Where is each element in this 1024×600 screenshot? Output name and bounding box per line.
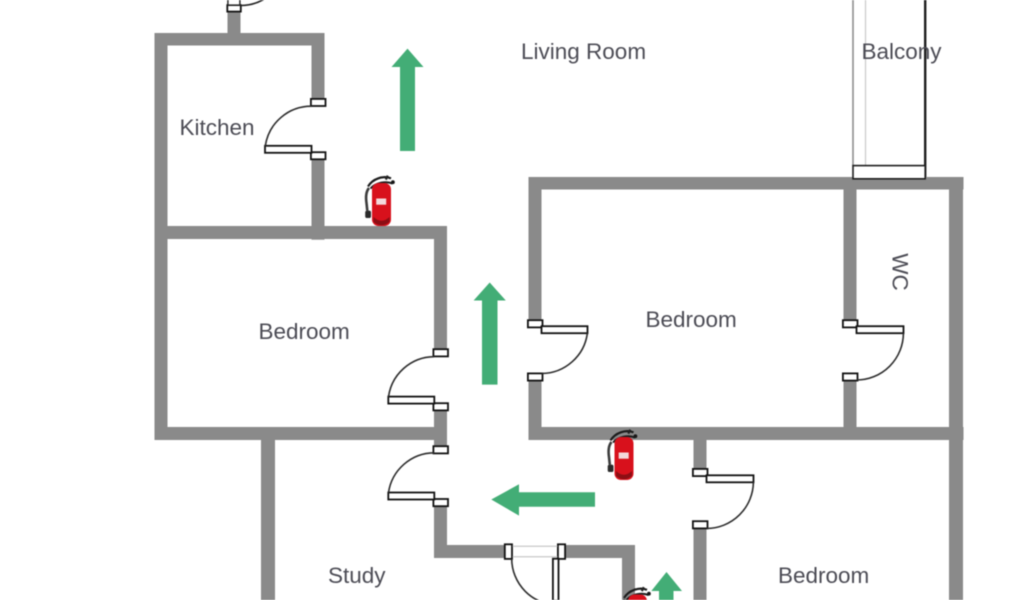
svg-text:Study: Study — [328, 563, 386, 588]
svg-text:Living Room: Living Room — [521, 39, 646, 64]
svg-text:Bedroom: Bedroom — [259, 319, 350, 344]
svg-text:Bedroom: Bedroom — [646, 307, 737, 332]
svg-text:WC: WC — [888, 253, 913, 291]
svg-text:Bedroom: Bedroom — [778, 563, 869, 588]
svg-text:Kitchen: Kitchen — [180, 115, 255, 140]
svg-text:Balcony: Balcony — [862, 39, 943, 64]
